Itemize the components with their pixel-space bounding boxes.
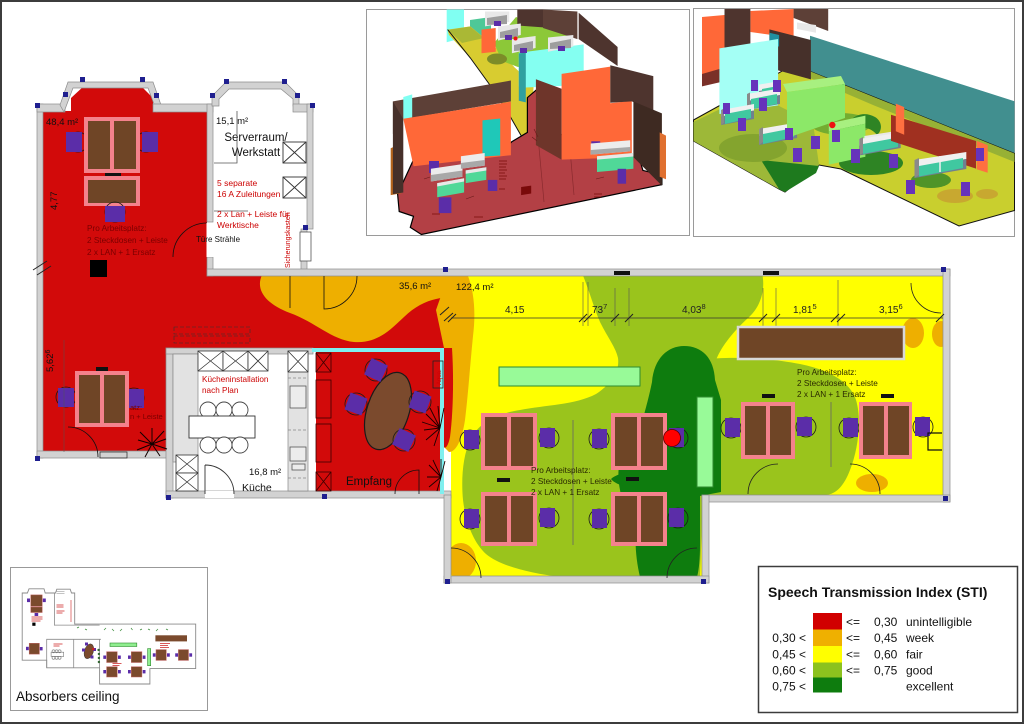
svg-text:Serverraum/: Serverraum/ xyxy=(224,132,288,144)
svg-text:5 separate: 5 separate xyxy=(217,178,257,188)
svg-text:Werktische: Werktische xyxy=(217,220,259,230)
svg-text:n + Leiste: n + Leiste xyxy=(130,412,163,421)
svg-text:Türe Strähle: Türe Strähle xyxy=(196,235,241,244)
svg-text:2 x Lan + Leiste für: 2 x Lan + Leiste für xyxy=(217,209,290,219)
svg-text:Pro Arbeitsplatz:: Pro Arbeitsplatz: xyxy=(531,466,591,475)
svg-text:Sicherungskasten: Sicherungskasten xyxy=(285,212,292,268)
svg-text:48,4 m²: 48,4 m² xyxy=(46,117,78,128)
svg-text:4,15: 4,15 xyxy=(505,305,525,316)
svg-text:2 x LAN + 1 Ersatz: 2 x LAN + 1 Ersatz xyxy=(87,248,156,257)
svg-text:4,77: 4,77 xyxy=(49,192,60,211)
svg-text:0,30: 0,30 xyxy=(874,615,898,629)
svg-text:0,75 <: 0,75 < xyxy=(772,680,806,694)
svg-text:2 Steckdosen + Leiste: 2 Steckdosen + Leiste xyxy=(87,236,168,245)
svg-text:excellent: excellent xyxy=(906,680,954,694)
svg-text:<=: <= xyxy=(846,631,860,645)
svg-text:Werkstatt: Werkstatt xyxy=(232,147,281,159)
svg-text:Küche: Küche xyxy=(242,482,272,494)
svg-text:unintelligible: unintelligible xyxy=(906,615,972,629)
svg-text:Aqua.: Aqua. xyxy=(437,369,443,385)
svg-text:Kücheninstallation: Kücheninstallation xyxy=(202,375,269,384)
svg-text:0,45 <: 0,45 < xyxy=(772,648,806,662)
svg-text:atz:: atz: xyxy=(130,403,142,412)
svg-text:2 Steckdosen + Leiste: 2 Steckdosen + Leiste xyxy=(797,379,878,388)
svg-text:2 Steckdosen + Leiste: 2 Steckdosen + Leiste xyxy=(531,477,612,486)
svg-text:122,4 m²: 122,4 m² xyxy=(456,282,494,293)
svg-text:2 x LAN + 1 Ersatz: 2 x LAN + 1 Ersatz xyxy=(531,488,600,497)
svg-text:2 x LAN + 1 Ersatz: 2 x LAN + 1 Ersatz xyxy=(797,390,866,399)
svg-text:0,60: 0,60 xyxy=(874,648,898,662)
svg-text:0,30 <: 0,30 < xyxy=(772,631,806,645)
svg-text:nach Plan: nach Plan xyxy=(202,386,239,395)
svg-text:35,6 m²: 35,6 m² xyxy=(399,281,431,292)
svg-text:week: week xyxy=(905,631,935,645)
svg-text:good: good xyxy=(906,664,933,678)
svg-text:Empfang: Empfang xyxy=(346,476,392,488)
svg-text:Pro Arbeitsplatz:: Pro Arbeitsplatz: xyxy=(797,368,857,377)
svg-text:0,75: 0,75 xyxy=(874,664,898,678)
svg-text:<=: <= xyxy=(846,615,860,629)
svg-text:16 A Zuleitungen: 16 A Zuleitungen xyxy=(217,189,281,199)
svg-text:15,1 m²: 15,1 m² xyxy=(216,116,248,127)
svg-text:fair: fair xyxy=(906,648,923,662)
svg-text:<=: <= xyxy=(846,664,860,678)
svg-text:Speech Transmission Index (STI: Speech Transmission Index (STI) xyxy=(768,584,987,600)
svg-text:0,60 <: 0,60 < xyxy=(772,664,806,678)
svg-text:0,45: 0,45 xyxy=(874,631,898,645)
svg-text:<=: <= xyxy=(846,648,860,662)
svg-text:Pro Arbeitsplatz:: Pro Arbeitsplatz: xyxy=(87,224,147,233)
svg-text:Absorbers ceiling: Absorbers ceiling xyxy=(16,689,120,704)
svg-text:16,8 m²: 16,8 m² xyxy=(249,467,281,478)
